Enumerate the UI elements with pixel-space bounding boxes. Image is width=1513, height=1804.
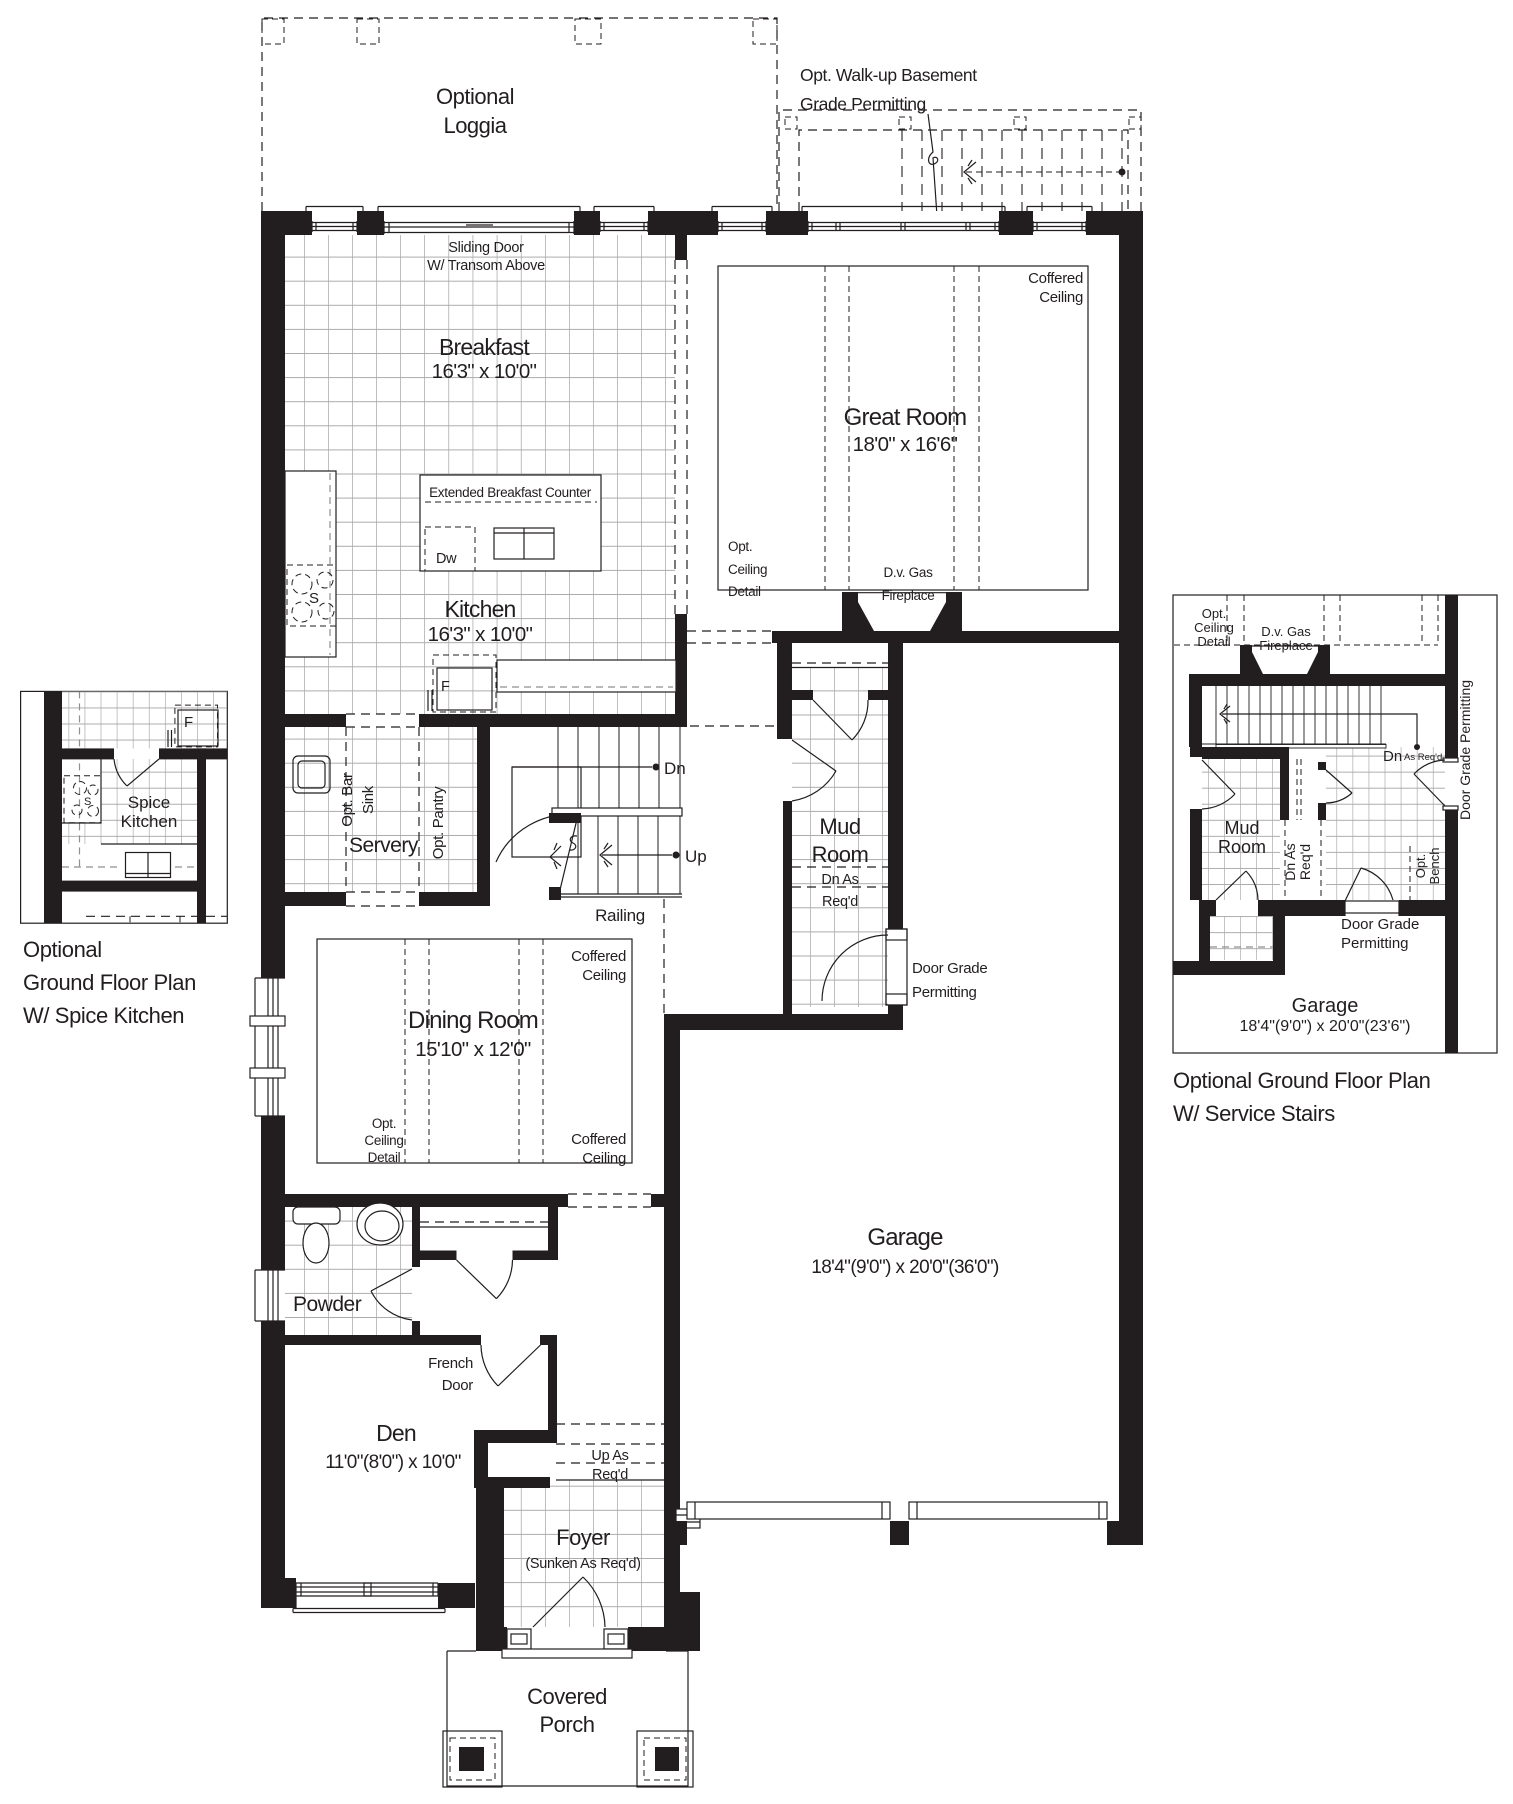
svg-text:Den: Den <box>376 1420 416 1446</box>
svg-text:Opt.: Opt. <box>1413 854 1428 879</box>
svg-text:Detail: Detail <box>368 1150 401 1165</box>
svg-text:Breakfast: Breakfast <box>439 334 530 360</box>
svg-text:Door Grade Permitting: Door Grade Permitting <box>1457 680 1473 820</box>
svg-text:Dw: Dw <box>436 551 457 567</box>
svg-text:Loggia: Loggia <box>443 113 507 138</box>
svg-text:Dn As: Dn As <box>1282 843 1298 880</box>
svg-text:Coffered: Coffered <box>571 1131 626 1148</box>
svg-text:Ceiling: Ceiling <box>364 1133 403 1148</box>
svg-text:18'4"(9'0") x 20'0"(23'6"): 18'4"(9'0") x 20'0"(23'6") <box>1239 1018 1410 1035</box>
svg-text:Foyer: Foyer <box>556 1525 610 1550</box>
svg-text:Permitting: Permitting <box>912 984 977 1001</box>
svg-text:S: S <box>309 590 319 607</box>
svg-text:Up: Up <box>685 847 707 866</box>
svg-text:11'0"(8'0") x 10'0": 11'0"(8'0") x 10'0" <box>325 1452 461 1473</box>
svg-text:Great Room: Great Room <box>844 404 967 431</box>
svg-text:D.v. Gas: D.v. Gas <box>1261 624 1311 639</box>
svg-text:Mud: Mud <box>819 814 860 839</box>
svg-text:Spice: Spice <box>128 793 171 812</box>
svg-text:Room: Room <box>812 842 869 867</box>
svg-text:Ceiling: Ceiling <box>1039 289 1083 306</box>
svg-text:Opt.: Opt. <box>728 539 752 554</box>
svg-text:Garage: Garage <box>867 1224 943 1251</box>
svg-text:Mud: Mud <box>1224 818 1259 838</box>
svg-text:Grade Permitting: Grade Permitting <box>800 94 926 114</box>
svg-text:Optional: Optional <box>436 84 514 109</box>
svg-text:F: F <box>441 679 450 695</box>
svg-text:16'3" x 10'0": 16'3" x 10'0" <box>432 360 537 383</box>
svg-text:15'10" x 12'0": 15'10" x 12'0" <box>415 1038 531 1061</box>
svg-text:Porch: Porch <box>540 1712 595 1737</box>
svg-text:W/ Transom Above: W/ Transom Above <box>427 258 545 274</box>
svg-text:Opt. Bar: Opt. Bar <box>339 773 356 827</box>
svg-text:Opt. Walk-up Basement: Opt. Walk-up Basement <box>800 65 977 85</box>
svg-text:W/ Spice Kitchen: W/ Spice Kitchen <box>23 1003 184 1028</box>
svg-text:Opt.: Opt. <box>372 1116 396 1131</box>
svg-text:Powder: Powder <box>293 1293 362 1316</box>
svg-text:Optional Ground Floor Plan: Optional Ground Floor Plan <box>1173 1068 1430 1093</box>
svg-text:Servery: Servery <box>349 834 419 857</box>
svg-text:Ground Floor Plan: Ground Floor Plan <box>23 970 196 995</box>
svg-text:Req'd: Req'd <box>822 894 858 910</box>
svg-text:Up As: Up As <box>591 1448 628 1464</box>
svg-text:Dining Room: Dining Room <box>408 1007 538 1034</box>
svg-text:Optional: Optional <box>23 937 102 962</box>
svg-text:18'4"(9'0") x 20'0"(36'0"): 18'4"(9'0") x 20'0"(36'0") <box>811 1257 999 1278</box>
svg-text:S: S <box>84 796 91 808</box>
svg-text:Req'd: Req'd <box>1297 844 1313 880</box>
svg-text:Ceiling: Ceiling <box>728 562 767 577</box>
svg-text:French: French <box>428 1355 473 1372</box>
svg-text:Sink: Sink <box>360 785 377 814</box>
svg-text:Dn As: Dn As <box>821 872 858 888</box>
svg-text:Fireplace: Fireplace <box>882 588 935 603</box>
svg-text:Dn: Dn <box>1383 748 1402 765</box>
svg-text:Room: Room <box>1218 837 1266 857</box>
svg-text:Req'd: Req'd <box>592 1467 628 1483</box>
svg-text:Bench: Bench <box>1427 848 1442 885</box>
svg-text:Opt. Pantry: Opt. Pantry <box>430 786 447 859</box>
svg-text:D.v. Gas: D.v. Gas <box>883 565 933 580</box>
svg-text:Kitchen: Kitchen <box>121 812 178 831</box>
svg-text:Ceiling: Ceiling <box>1194 620 1234 635</box>
svg-text:Coffered: Coffered <box>571 948 626 965</box>
svg-text:Covered: Covered <box>527 1684 607 1709</box>
svg-text:Ceiling: Ceiling <box>582 1150 626 1167</box>
svg-text:F: F <box>184 714 193 731</box>
svg-text:16'3" x 10'0": 16'3" x 10'0" <box>428 623 533 646</box>
svg-text:Kitchen: Kitchen <box>444 596 515 622</box>
svg-text:Opt.: Opt. <box>1202 606 1227 621</box>
svg-text:18'0" x 16'6": 18'0" x 16'6" <box>853 433 958 456</box>
svg-text:Door Grade: Door Grade <box>1341 916 1419 933</box>
svg-text:Permitting: Permitting <box>1341 935 1409 952</box>
svg-text:Coffered: Coffered <box>1028 270 1083 287</box>
svg-text:Railing: Railing <box>595 906 645 925</box>
svg-text:Detail: Detail <box>728 584 761 599</box>
svg-text:Dn: Dn <box>664 759 686 778</box>
svg-text:Detail: Detail <box>1197 634 1230 649</box>
svg-text:Door Grade: Door Grade <box>912 960 987 977</box>
svg-text:Ceiling: Ceiling <box>582 967 626 984</box>
svg-text:Garage: Garage <box>1292 995 1359 1017</box>
svg-text:Sliding Door: Sliding Door <box>448 240 524 256</box>
svg-text:(Sunken As Req'd): (Sunken As Req'd) <box>525 1556 640 1572</box>
svg-text:Door: Door <box>442 1377 474 1394</box>
svg-text:Extended Breakfast Counter: Extended Breakfast Counter <box>429 485 592 500</box>
svg-text:W/ Service Stairs: W/ Service Stairs <box>1173 1101 1335 1126</box>
